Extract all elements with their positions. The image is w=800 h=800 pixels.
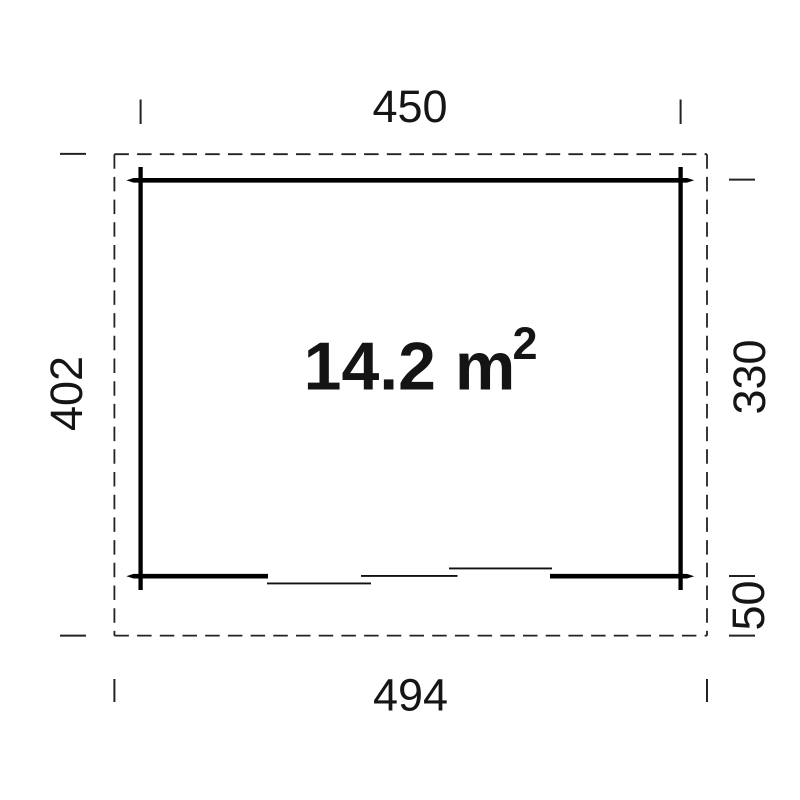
- svg-text:14.2 m: 14.2 m: [304, 329, 516, 405]
- svg-text:50: 50: [723, 580, 774, 630]
- svg-text:450: 450: [372, 81, 447, 132]
- svg-text:402: 402: [41, 356, 92, 431]
- svg-text:330: 330: [724, 339, 775, 414]
- svg-text:494: 494: [373, 670, 448, 721]
- svg-text:2: 2: [513, 318, 538, 369]
